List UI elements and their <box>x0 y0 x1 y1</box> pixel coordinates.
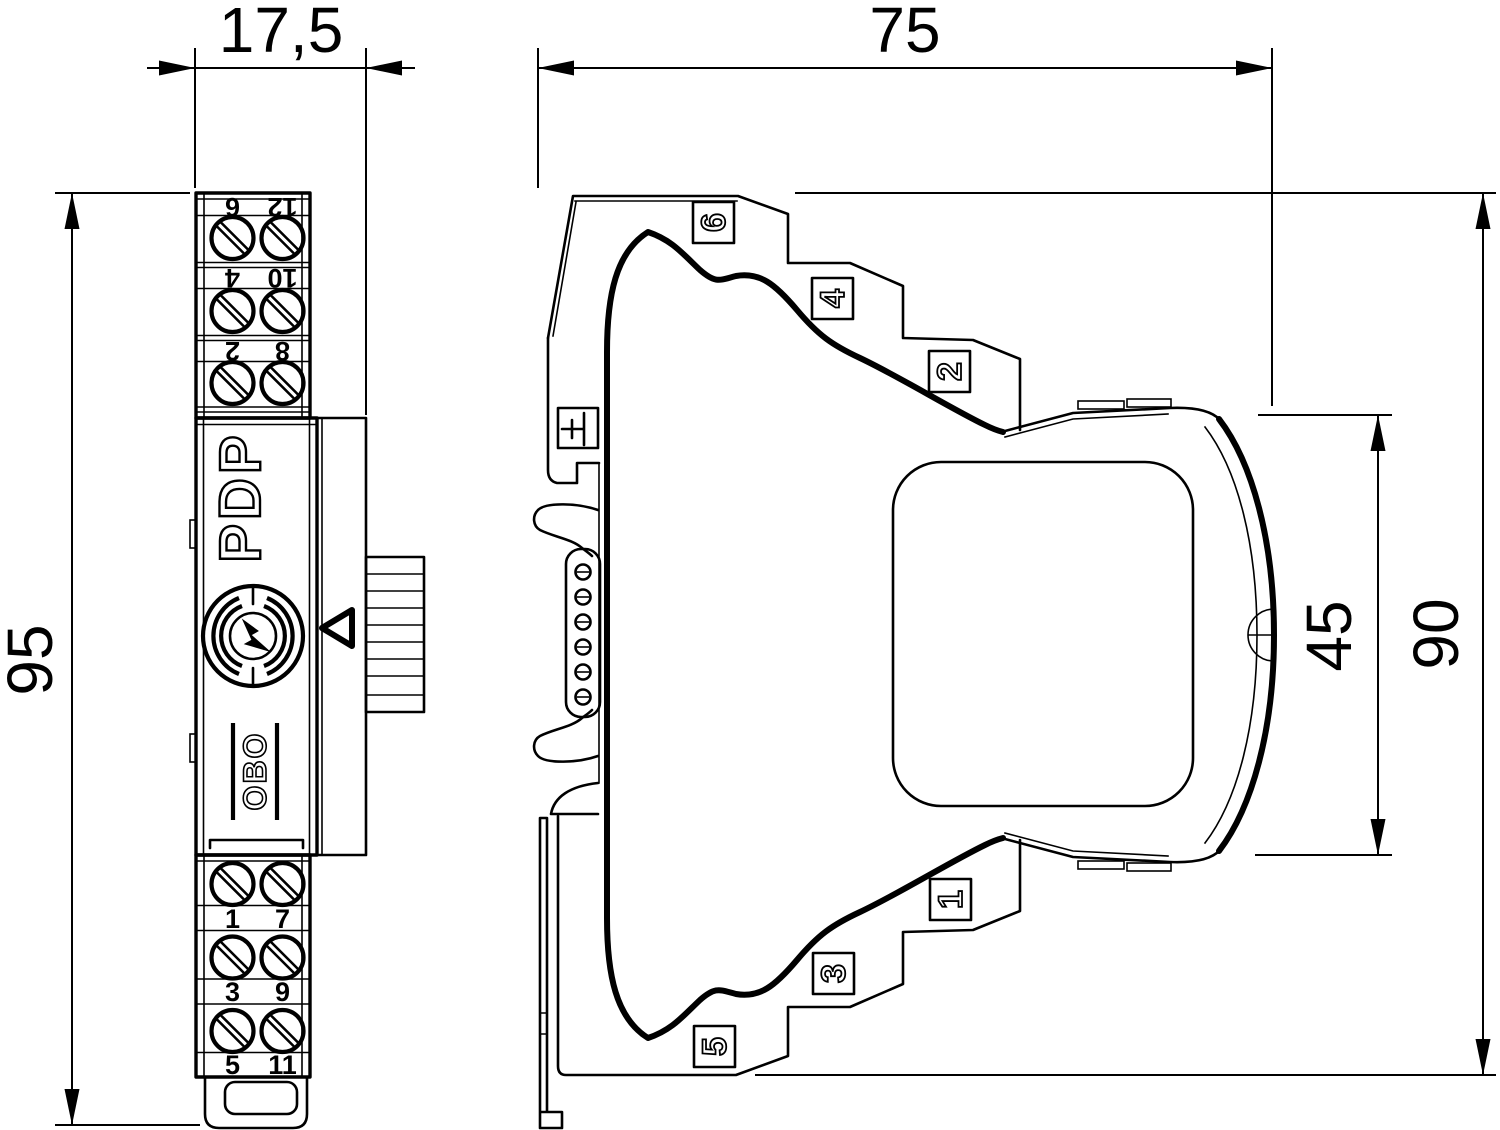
side-view: 6 4 2 1 3 5 <box>534 196 1276 1128</box>
top-terminal-block: 6 12 4 10 2 8 <box>196 192 310 418</box>
dim-label-90: 90 <box>1400 598 1472 669</box>
module-face <box>893 462 1193 806</box>
terminal-screw <box>262 290 304 332</box>
svg-text:6: 6 <box>695 213 733 232</box>
marker-1: 1 <box>930 879 971 920</box>
terminal-screw <box>262 937 304 979</box>
dim-label-45: 45 <box>1293 600 1365 671</box>
plug-in-module <box>893 399 1276 871</box>
brand-logo-text: OBO <box>237 732 273 811</box>
surge-arrester-logo-icon <box>203 586 303 686</box>
terminal-screw <box>212 1010 254 1052</box>
marker-6: 6 <box>693 202 734 243</box>
terminal-number: 1 <box>225 904 240 934</box>
dim-label-95: 95 <box>0 624 66 695</box>
housing-inner-contour <box>607 232 1003 1038</box>
svg-text:5: 5 <box>696 1037 734 1056</box>
functional-earth-icon <box>562 413 584 445</box>
terminal-screw <box>262 217 304 259</box>
marker-3: 3 <box>813 953 854 994</box>
brand-logo: OBO <box>233 723 277 820</box>
mounting-tab <box>205 1077 307 1128</box>
insert-direction-arrow-icon <box>322 610 352 646</box>
earth-marker <box>558 408 598 448</box>
product-label: PDP <box>208 431 273 562</box>
lightning-bolt-icon <box>243 620 269 651</box>
marker-4: 4 <box>812 278 853 319</box>
terminal-number: 7 <box>275 904 290 934</box>
svg-text:1: 1 <box>932 890 970 909</box>
terminal-number: 11 <box>268 1050 297 1080</box>
din-rail-clip <box>534 504 600 761</box>
terminal-number: 3 <box>225 977 240 1007</box>
front-view: 6 12 4 10 2 8 PDP <box>190 192 424 1128</box>
contact-pins <box>576 565 591 705</box>
housing-outline <box>548 196 1020 1075</box>
contact-strip <box>566 549 600 717</box>
svg-text:3: 3 <box>815 964 853 983</box>
dimension-95: 95 <box>0 193 200 1125</box>
dim-label-17-5: 17,5 <box>219 0 344 66</box>
terminal-markers: 6 4 2 1 3 5 <box>693 202 971 1067</box>
svg-text:2: 2 <box>931 362 969 381</box>
marker-2: 2 <box>929 351 970 392</box>
connector-fins <box>366 557 424 712</box>
terminal-screw <box>212 362 254 404</box>
terminal-screw <box>212 290 254 332</box>
dim-label-75: 75 <box>869 0 940 66</box>
terminal-number: 9 <box>275 977 290 1007</box>
dimension-drawing-page: 17,5 75 95 45 90 <box>0 0 1500 1130</box>
terminal-screw <box>212 863 254 905</box>
terminal-screw <box>212 217 254 259</box>
terminal-number: 5 <box>225 1050 240 1080</box>
terminal-screw <box>262 362 304 404</box>
svg-text:4: 4 <box>814 289 852 308</box>
terminal-screw <box>262 863 304 905</box>
bottom-terminal-block: 1 7 3 9 5 11 <box>196 855 310 1080</box>
terminal-screw <box>212 937 254 979</box>
terminal-screw <box>262 1010 304 1052</box>
technical-drawing: 17,5 75 95 45 90 <box>0 0 1500 1130</box>
dimension-90: 90 <box>755 193 1496 1075</box>
dimension-75: 75 <box>538 0 1272 406</box>
device-body-front: PDP OBO <box>190 418 424 855</box>
marker-5: 5 <box>694 1026 735 1067</box>
